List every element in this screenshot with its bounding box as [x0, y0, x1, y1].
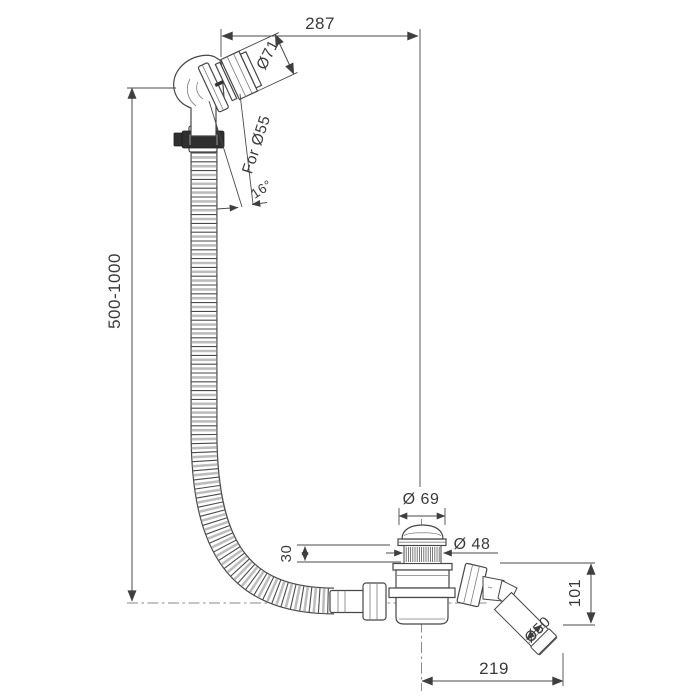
trap-lower-body: [396, 598, 448, 625]
technical-drawing-page: 287 500-1000 Ø71 For Ø55 16° Ø 69 Ø 48 3…: [0, 0, 700, 700]
dimension-500-1000: 500-1000: [105, 88, 176, 601]
plug-dome-cap: [402, 525, 443, 539]
dimension-30: 30: [278, 545, 401, 563]
dim-55-label: For Ø55: [239, 113, 274, 176]
outlet-assembly: [457, 563, 558, 655]
dim-287-label: 287: [305, 14, 335, 33]
dim-69-label: Ø 69: [403, 491, 440, 508]
dim-48-label: Ø 48: [454, 536, 491, 553]
trap-flange: [389, 588, 455, 598]
hose-to-trap-connector: [330, 583, 386, 620]
corrugated-hose: [192, 150, 334, 613]
trap-upper-cup: [396, 570, 449, 588]
dim-30-label: 30: [278, 545, 295, 563]
drain-trap-body: [389, 525, 455, 624]
dim-500-1000-label: 500-1000: [105, 253, 124, 329]
inlet-nut: [363, 583, 386, 620]
dimension-for-55: For Ø55: [239, 113, 274, 176]
dimension-219: 219: [422, 653, 563, 686]
dim-219-label: 219: [479, 659, 509, 678]
trap-lip: [393, 564, 452, 571]
dim-101-label: 101: [567, 579, 584, 607]
threaded-collar: [404, 546, 441, 564]
bath-drain-technical-drawing: 287 500-1000 Ø71 For Ø55 16° Ø 69 Ø 48 3…: [0, 0, 700, 700]
